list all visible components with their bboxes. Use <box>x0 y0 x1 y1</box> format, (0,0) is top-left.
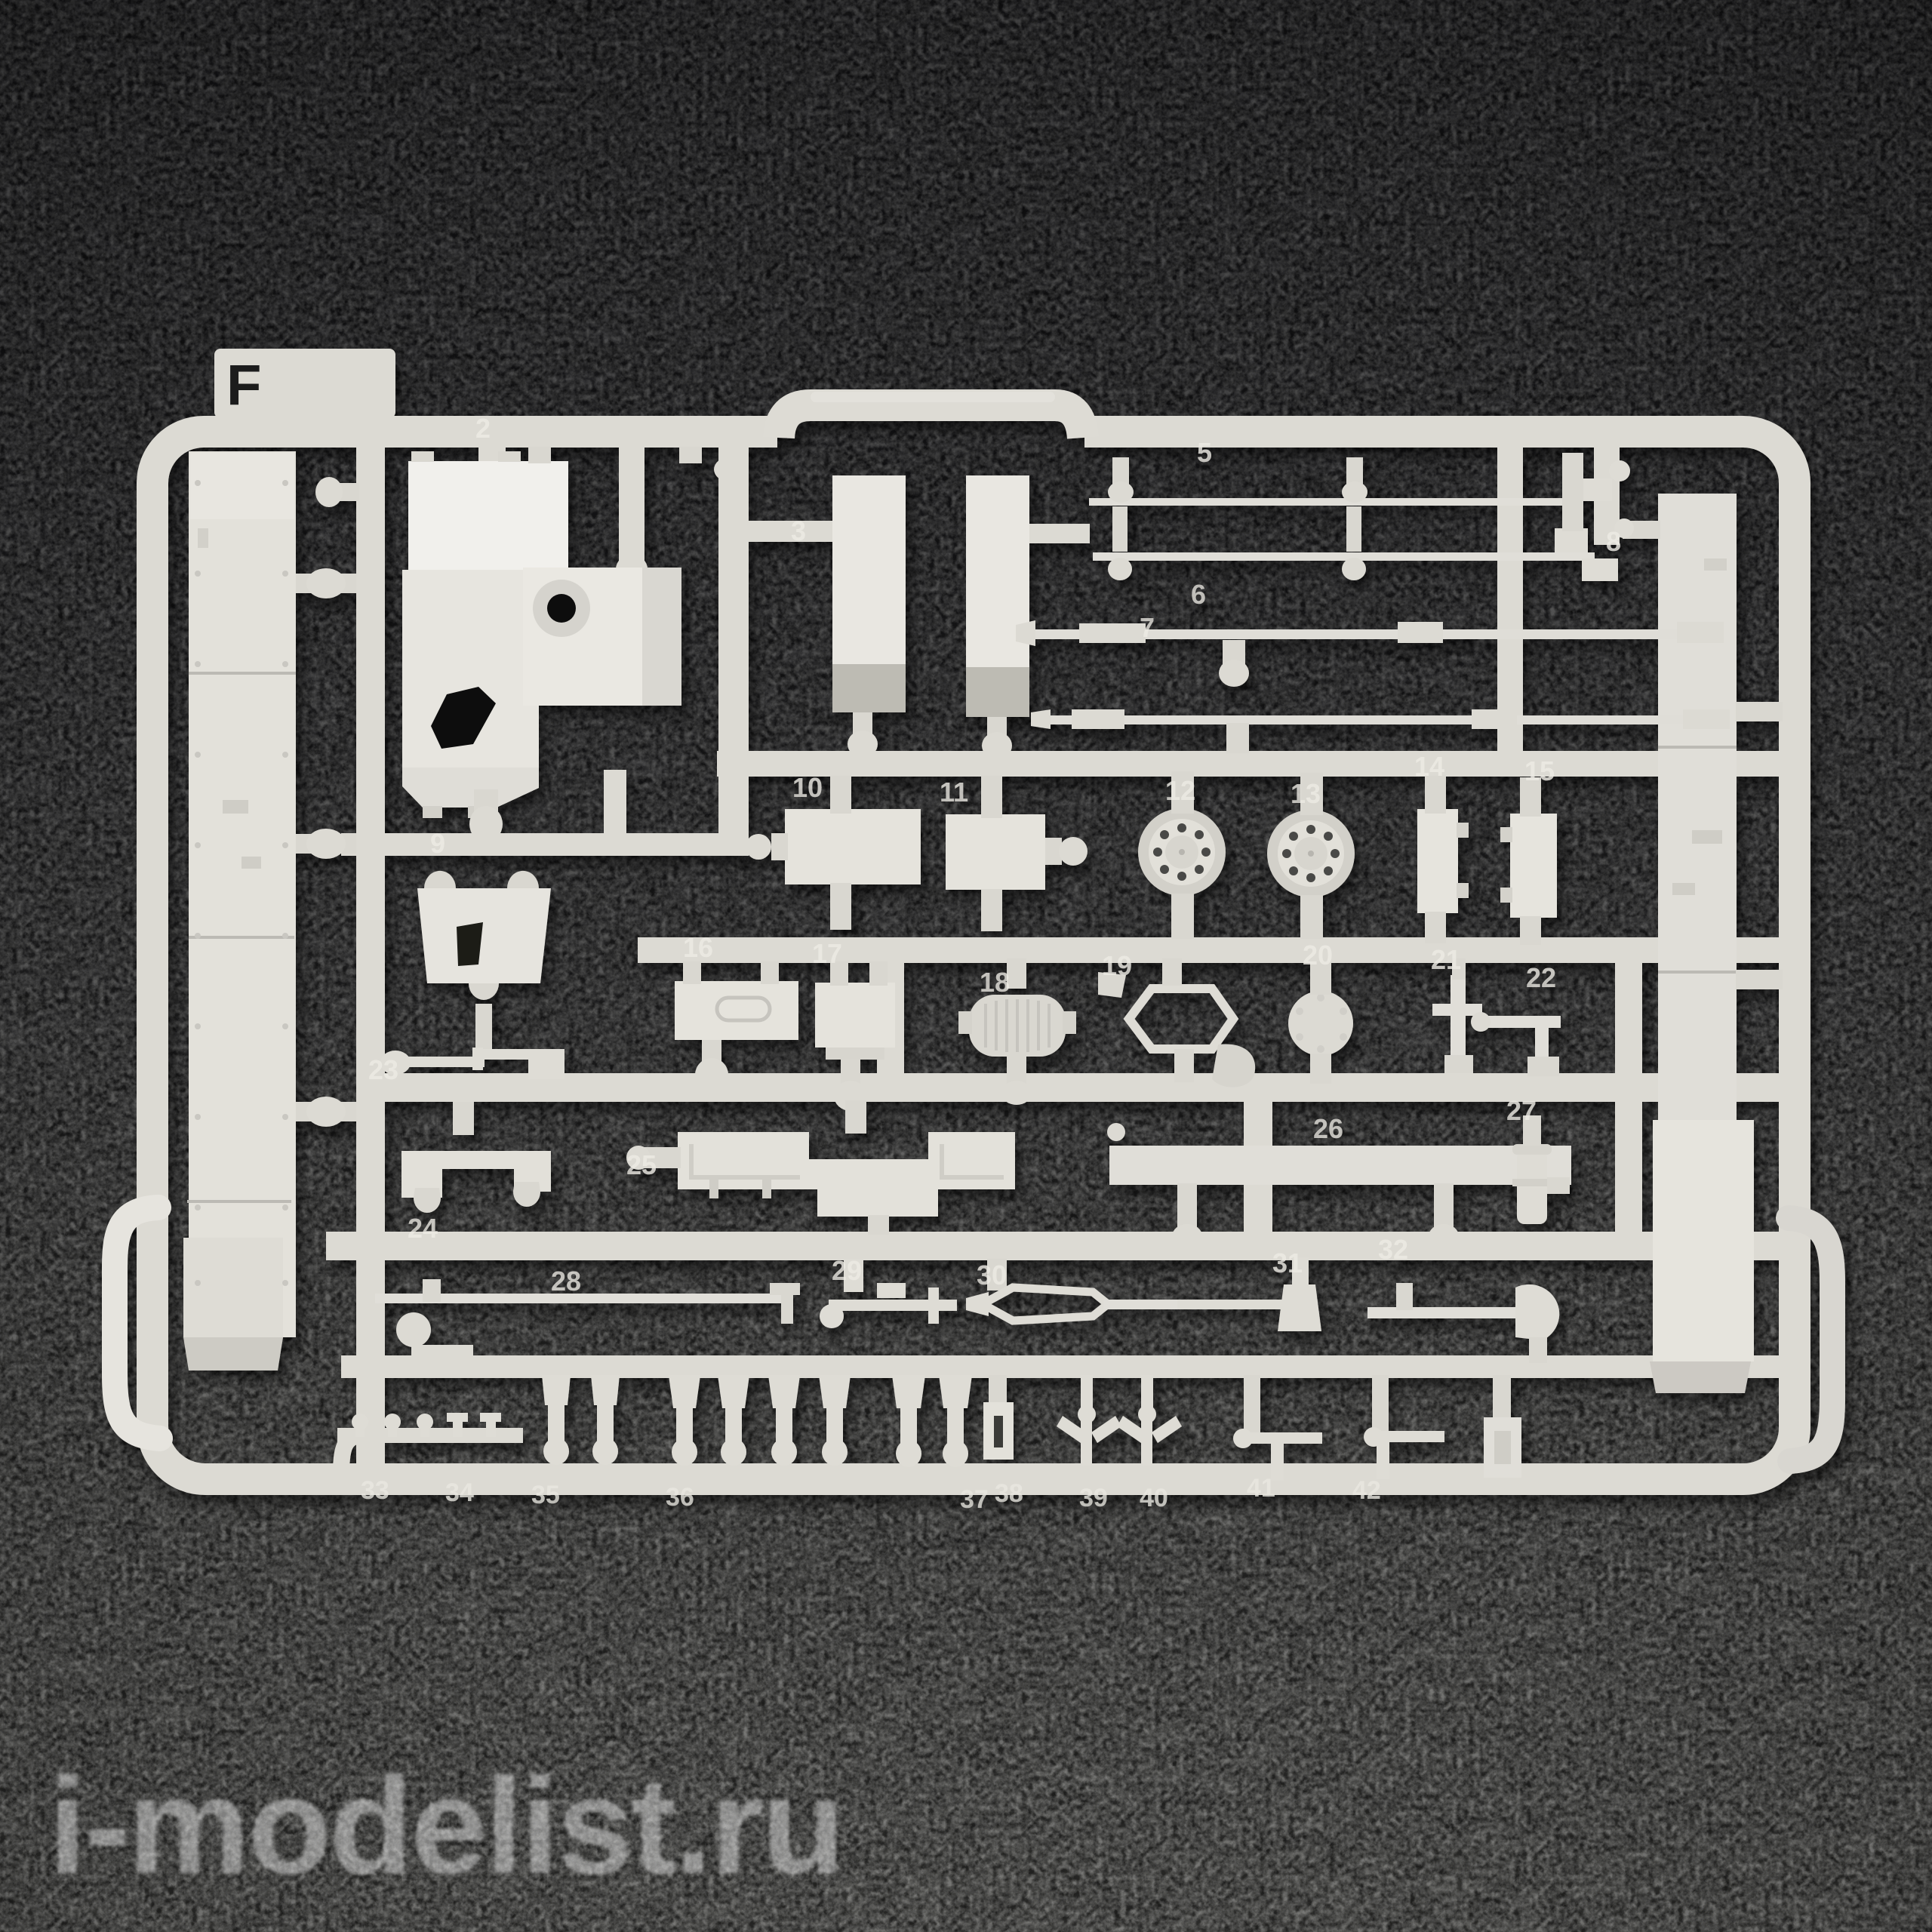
svg-text:25: 25 <box>626 1149 657 1180</box>
svg-text:11: 11 <box>940 777 968 808</box>
svg-text:41: 41 <box>1247 1474 1275 1503</box>
svg-text:8: 8 <box>1606 526 1621 557</box>
svg-text:15: 15 <box>1524 755 1555 786</box>
svg-text:7: 7 <box>1140 612 1155 643</box>
svg-text:13: 13 <box>1291 778 1321 809</box>
svg-text:31: 31 <box>1272 1247 1303 1278</box>
svg-text:34: 34 <box>445 1478 474 1507</box>
svg-text:6: 6 <box>1191 579 1206 610</box>
svg-text:30: 30 <box>977 1260 1007 1291</box>
svg-text:38: 38 <box>995 1479 1023 1508</box>
svg-text:35: 35 <box>531 1481 560 1509</box>
svg-text:18: 18 <box>980 967 1010 998</box>
svg-text:19: 19 <box>1102 950 1132 981</box>
svg-text:12: 12 <box>1165 775 1195 806</box>
svg-text:36: 36 <box>666 1483 694 1512</box>
svg-text:23: 23 <box>368 1054 398 1085</box>
svg-text:39: 39 <box>1079 1484 1108 1512</box>
svg-text:37: 37 <box>960 1485 989 1514</box>
svg-text:16: 16 <box>683 932 713 963</box>
svg-text:3: 3 <box>791 515 806 546</box>
svg-text:i-modelist.ru: i-modelist.ru <box>48 1749 843 1903</box>
svg-text:5: 5 <box>1197 437 1212 468</box>
svg-text:20: 20 <box>1303 940 1333 971</box>
svg-text:28: 28 <box>551 1266 581 1297</box>
svg-text:26: 26 <box>1313 1113 1343 1144</box>
svg-text:17: 17 <box>812 938 842 969</box>
svg-text:27: 27 <box>1506 1095 1537 1126</box>
svg-text:24: 24 <box>408 1213 438 1244</box>
svg-text:40: 40 <box>1140 1484 1168 1512</box>
svg-text:2: 2 <box>475 413 491 444</box>
svg-text:9: 9 <box>430 828 445 859</box>
svg-text:10: 10 <box>792 772 823 803</box>
svg-text:33: 33 <box>361 1476 389 1505</box>
svg-text:22: 22 <box>1526 962 1556 993</box>
svg-text:29: 29 <box>832 1255 862 1286</box>
svg-text:42: 42 <box>1352 1476 1381 1505</box>
svg-text:F: F <box>226 353 261 417</box>
svg-text:14: 14 <box>1414 751 1444 782</box>
svg-text:32: 32 <box>1378 1234 1408 1265</box>
svg-text:21: 21 <box>1431 944 1461 975</box>
